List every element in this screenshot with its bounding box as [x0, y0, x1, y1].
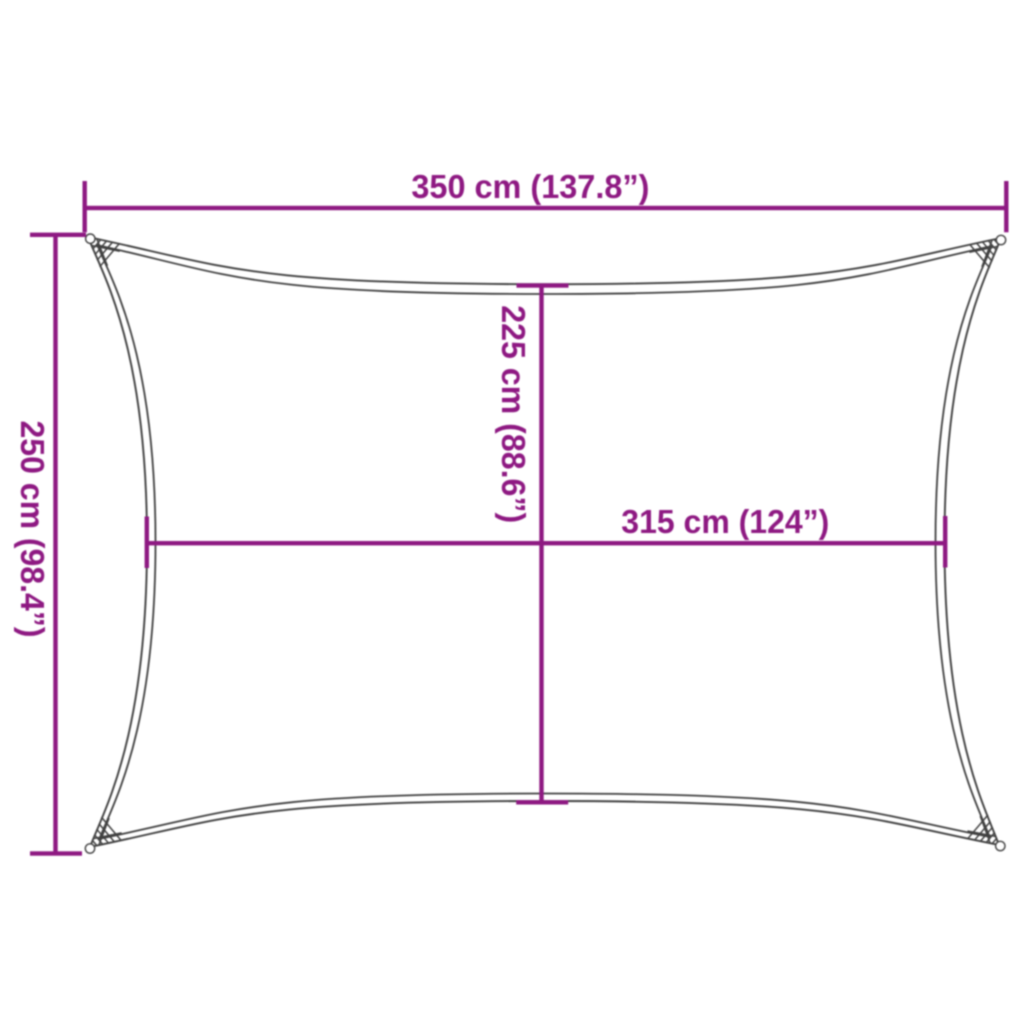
svg-text:315 cm (124”): 315 cm (124”) — [621, 503, 829, 540]
svg-text:225 cm (88.6”): 225 cm (88.6”) — [495, 305, 532, 523]
svg-text:250 cm (98.4”): 250 cm (98.4”) — [14, 421, 51, 638]
svg-text:350 cm (137.8”): 350 cm (137.8”) — [411, 168, 649, 205]
